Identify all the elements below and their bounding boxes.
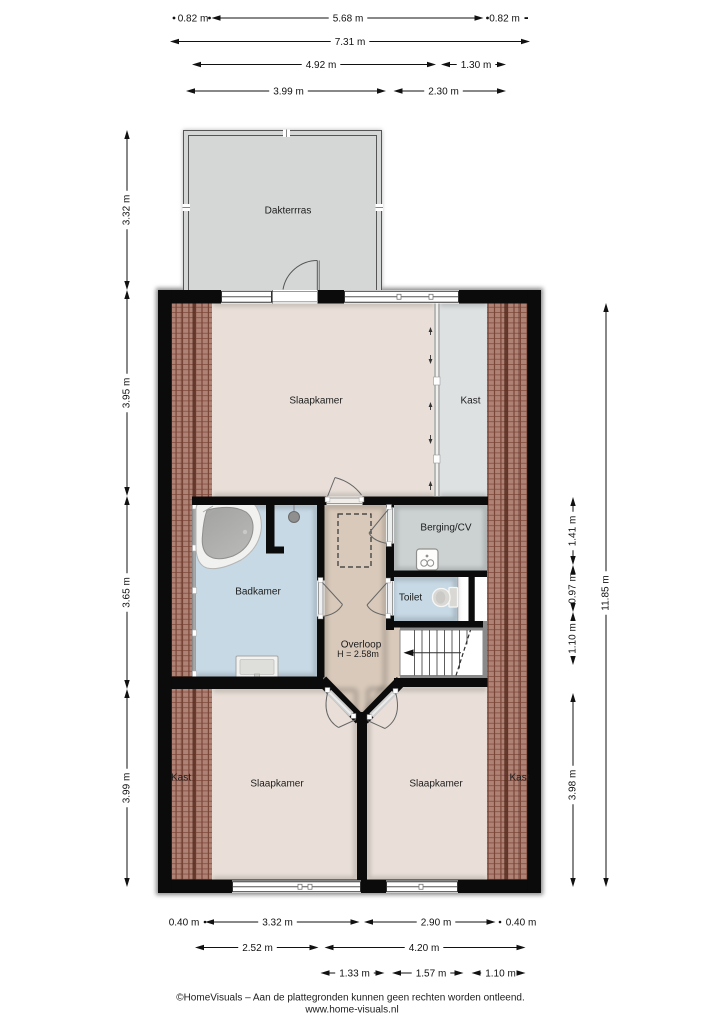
- svg-text:Slaapkamer: Slaapkamer: [250, 778, 304, 789]
- svg-text:0.82 m: 0.82 m: [178, 13, 209, 24]
- svg-text:Toilet: Toilet: [399, 593, 423, 604]
- svg-text:4.20 m: 4.20 m: [409, 943, 440, 954]
- svg-text:Dakterrras: Dakterrras: [265, 205, 312, 216]
- svg-text:H = 2.58m: H = 2.58m: [337, 649, 379, 659]
- svg-text:7.31 m: 7.31 m: [335, 37, 366, 48]
- svg-text:Slaapkamer: Slaapkamer: [409, 778, 463, 789]
- svg-text:0.97 m: 0.97 m: [568, 573, 579, 604]
- svg-text:Kast: Kast: [509, 772, 529, 783]
- svg-text:Berging/CV: Berging/CV: [420, 522, 471, 533]
- svg-text:1.41 m: 1.41 m: [568, 516, 579, 547]
- svg-text:1.10 m: 1.10 m: [485, 968, 516, 979]
- svg-text:3.32 m: 3.32 m: [122, 195, 133, 226]
- svg-text:2.90 m: 2.90 m: [421, 917, 452, 928]
- svg-text:1.33 m: 1.33 m: [339, 968, 370, 979]
- svg-text:3.32 m: 3.32 m: [262, 917, 293, 928]
- svg-text:2.30 m: 2.30 m: [428, 86, 459, 97]
- svg-text:3.99 m: 3.99 m: [122, 773, 133, 804]
- svg-text:2.52 m: 2.52 m: [242, 943, 273, 954]
- svg-text:11.85 m: 11.85 m: [601, 575, 612, 610]
- svg-text:0.40 m: 0.40 m: [169, 917, 200, 928]
- svg-text:1.10 m: 1.10 m: [568, 623, 579, 654]
- svg-text:1.30 m: 1.30 m: [461, 60, 492, 71]
- svg-text:3.65 m: 3.65 m: [122, 577, 133, 608]
- svg-text:Kast: Kast: [171, 772, 191, 783]
- svg-text:3.95 m: 3.95 m: [122, 378, 133, 409]
- svg-text:©HomeVisuals – Aan de plattegr: ©HomeVisuals – Aan de plattegronden kunn…: [176, 993, 525, 1004]
- svg-text:Badkamer: Badkamer: [235, 586, 281, 597]
- svg-text:Slaapkamer: Slaapkamer: [289, 395, 343, 406]
- svg-text:4.92 m: 4.92 m: [306, 60, 337, 71]
- svg-text:3.98 m: 3.98 m: [568, 770, 579, 801]
- svg-text:0.40 m: 0.40 m: [506, 917, 537, 928]
- svg-text:5.68 m: 5.68 m: [333, 13, 364, 24]
- svg-text:3.99 m: 3.99 m: [273, 86, 304, 97]
- svg-text:Kast: Kast: [460, 395, 480, 406]
- svg-text:1.57 m: 1.57 m: [416, 968, 447, 979]
- svg-text:0.82 m: 0.82 m: [489, 13, 520, 24]
- svg-text:www.home-visuals.nl: www.home-visuals.nl: [304, 1005, 398, 1016]
